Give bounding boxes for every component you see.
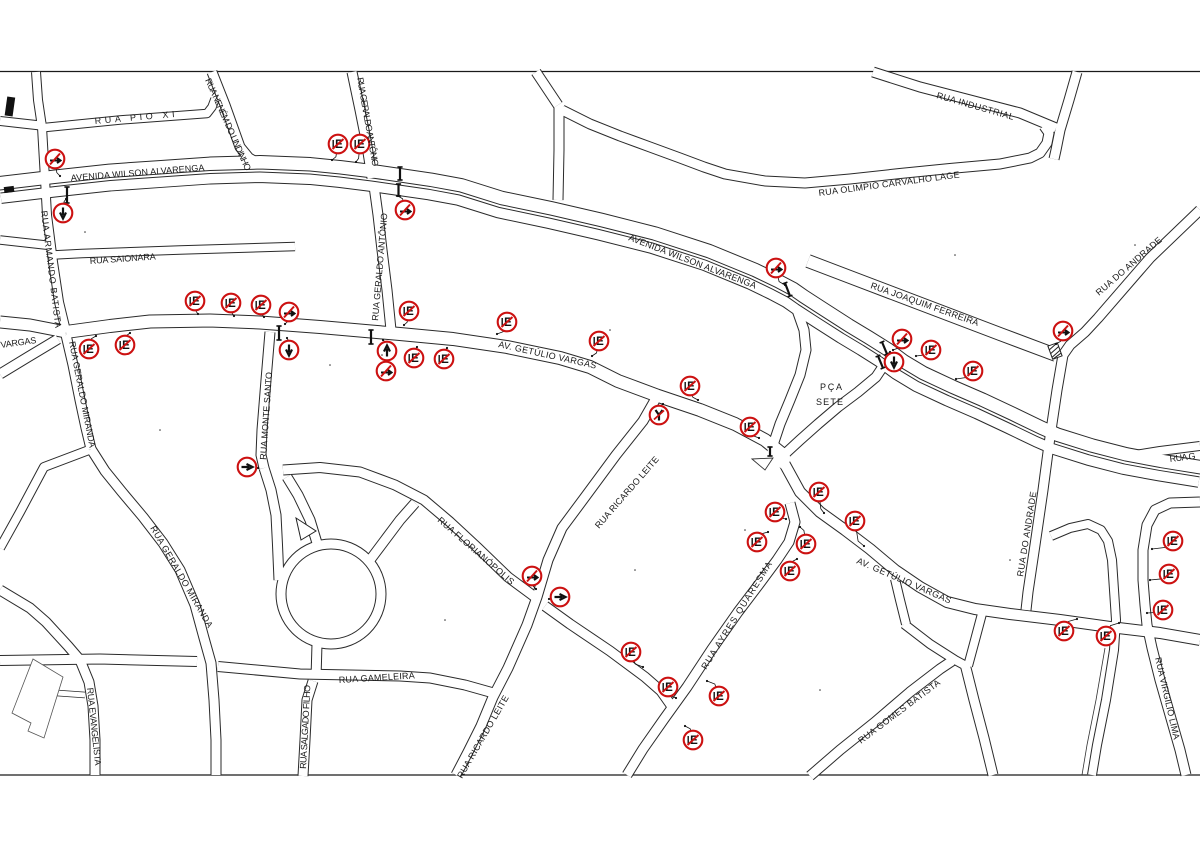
svg-text:SETE: SETE bbox=[816, 397, 843, 407]
svg-text:PÇA: PÇA bbox=[820, 382, 842, 392]
